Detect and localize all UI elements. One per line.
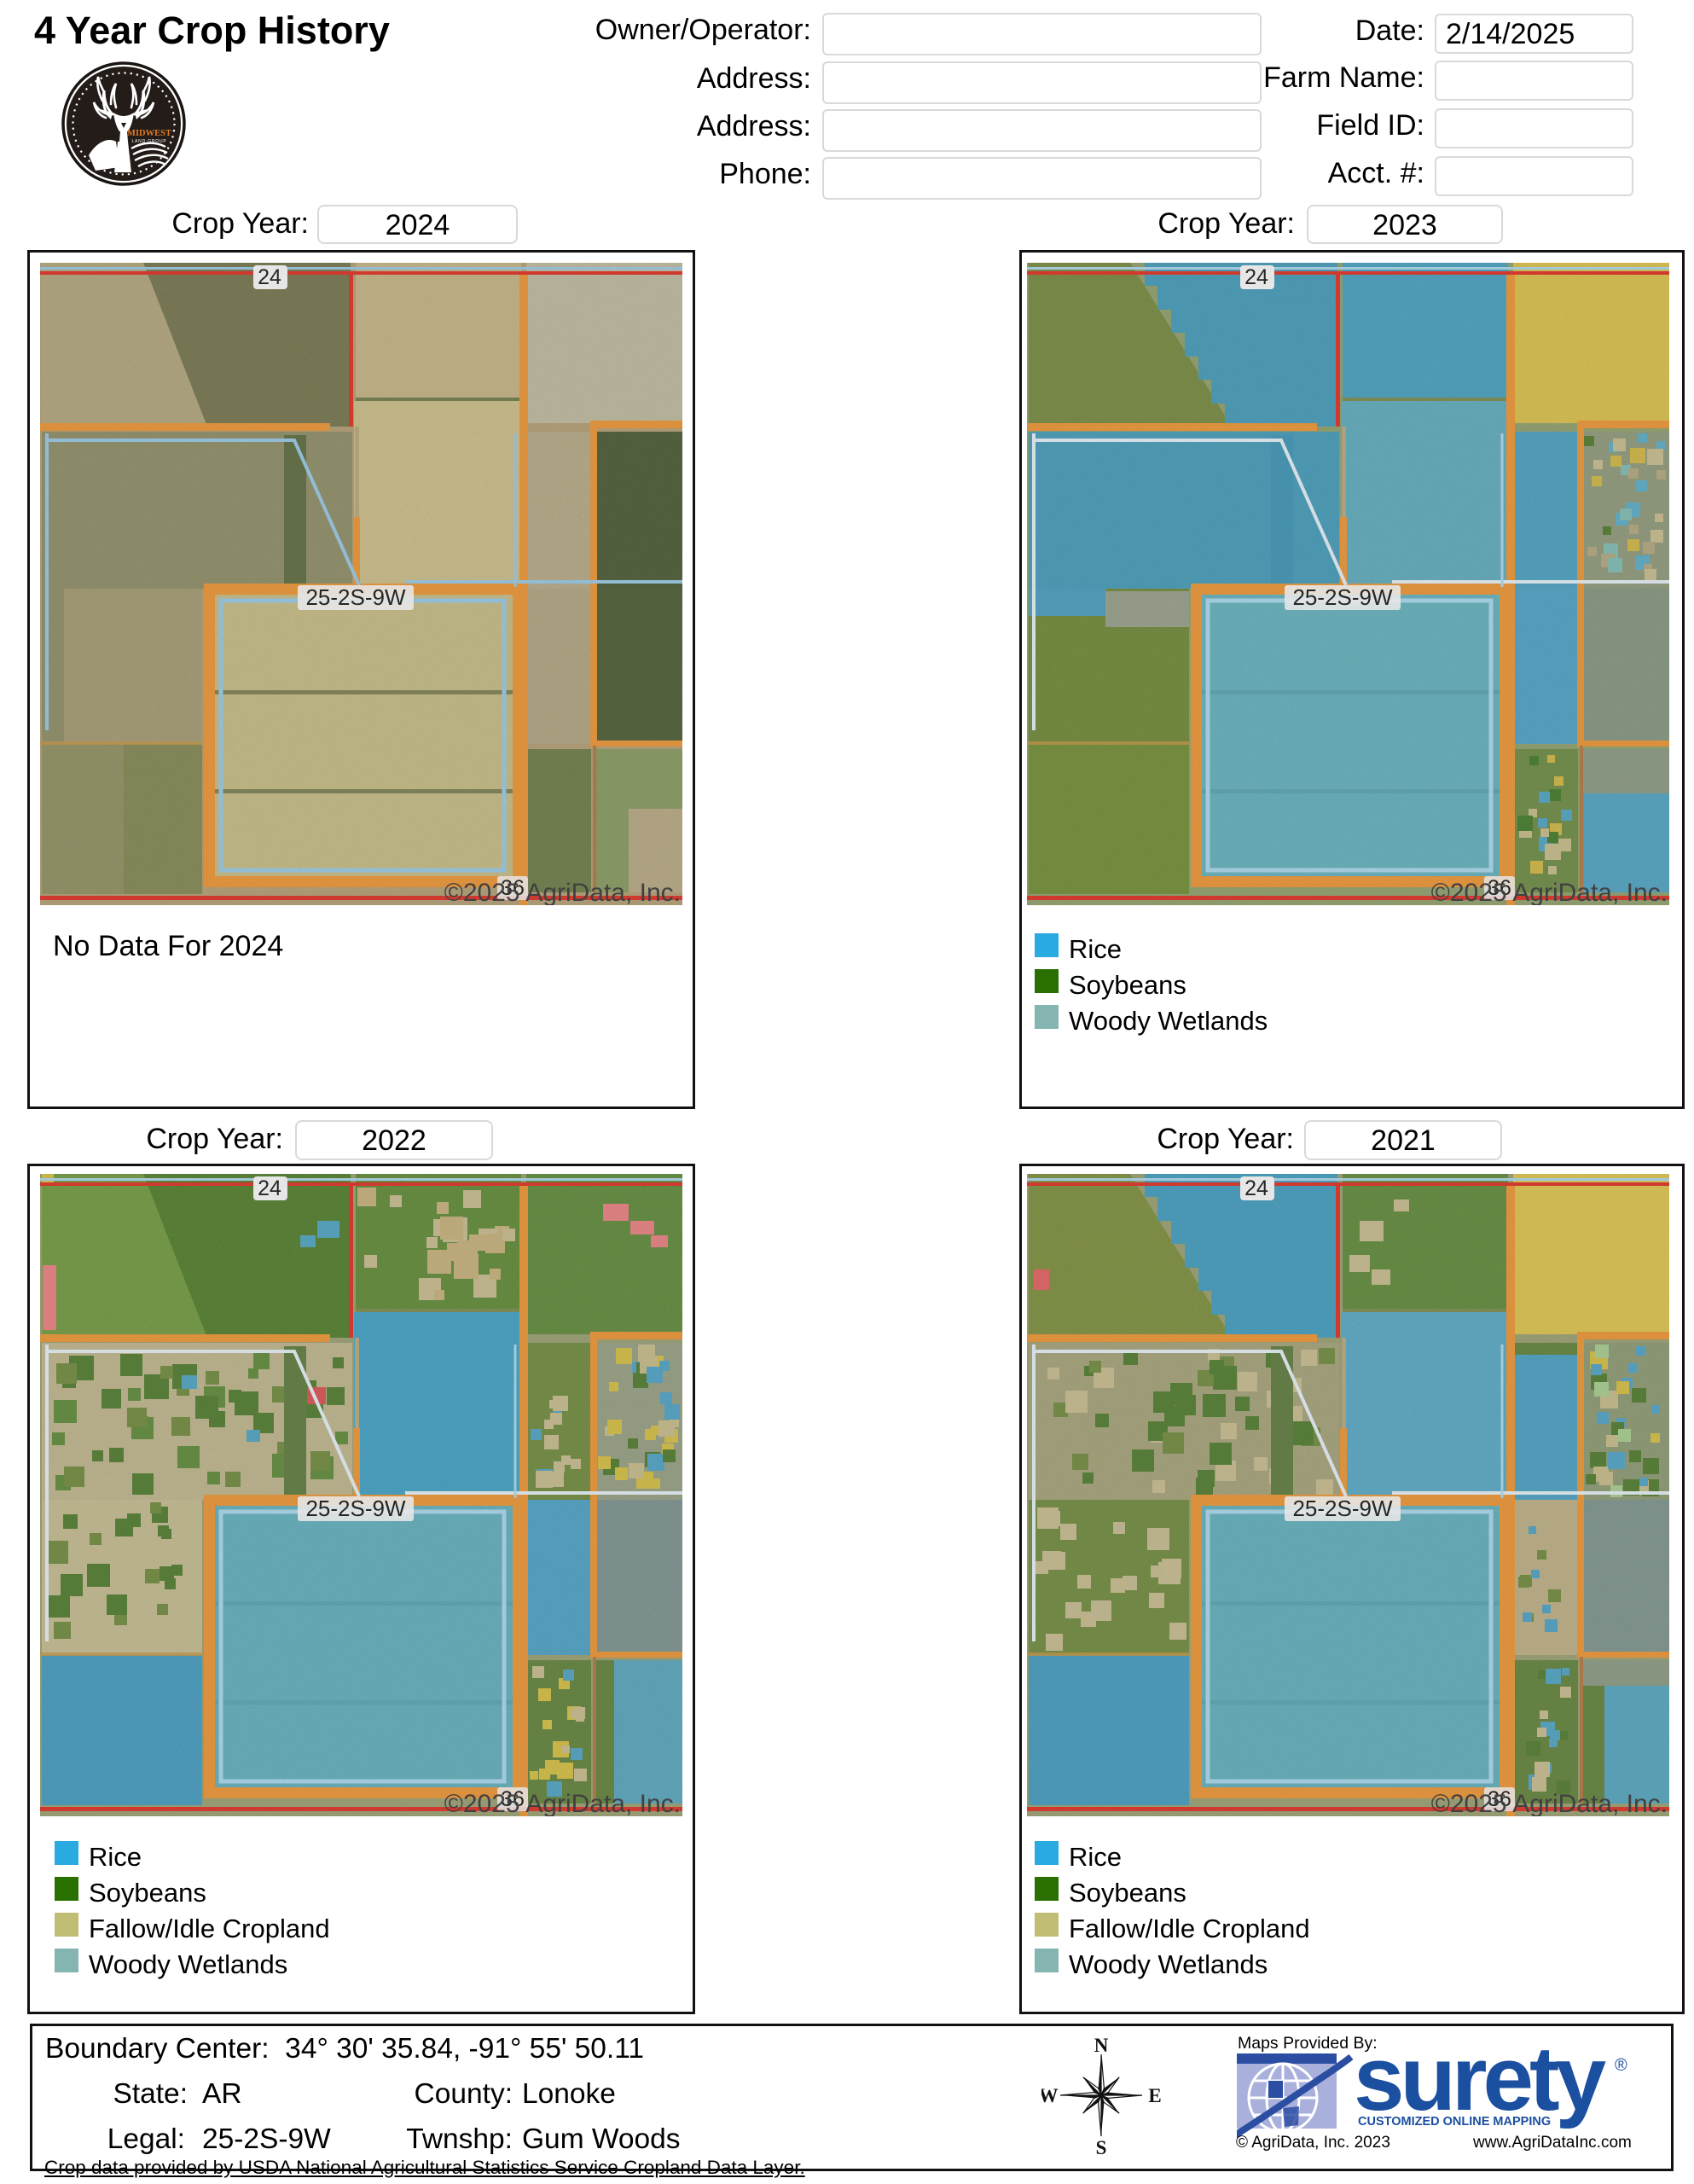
svg-text:MIDWEST: MIDWEST <box>127 129 171 138</box>
svg-text:©2025 AgriData, Inc.: ©2025 AgriData, Inc. <box>444 879 681 905</box>
svg-text:©2025 AgriData, Inc.: ©2025 AgriData, Inc. <box>1431 1790 1668 1816</box>
svg-text:LAND GROUP: LAND GROUP <box>131 139 166 144</box>
svg-text:©2025 AgriData, Inc.: ©2025 AgriData, Inc. <box>1431 879 1668 905</box>
svg-text:E: E <box>1148 2085 1161 2106</box>
svg-text:S: S <box>1096 2137 1107 2155</box>
svg-text:W: W <box>1041 2085 1059 2106</box>
svg-text:N: N <box>1094 2036 1109 2056</box>
svg-text:©2025 AgriData, Inc.: ©2025 AgriData, Inc. <box>444 1790 681 1816</box>
